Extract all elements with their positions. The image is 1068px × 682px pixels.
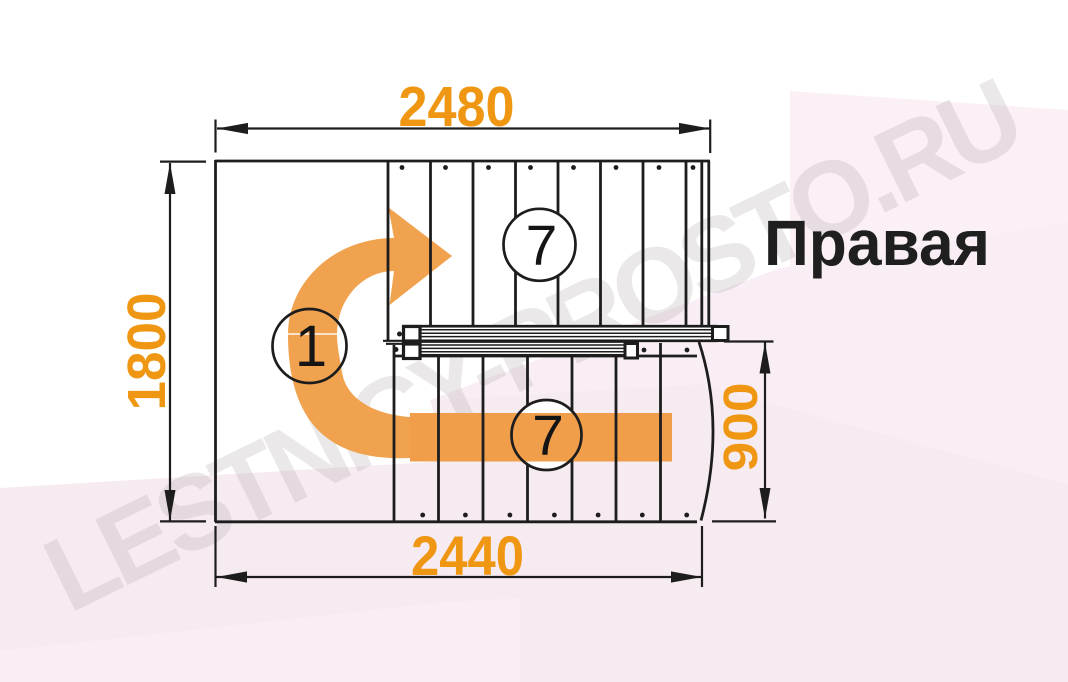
svg-text:2440: 2440 bbox=[411, 524, 524, 587]
svg-text:1800: 1800 bbox=[117, 293, 177, 411]
svg-text:1: 1 bbox=[295, 314, 327, 379]
svg-text:900: 900 bbox=[715, 383, 768, 472]
svg-text:7: 7 bbox=[532, 404, 564, 468]
svg-text:2480: 2480 bbox=[399, 75, 515, 139]
svg-text:7: 7 bbox=[526, 214, 558, 278]
svg-text:Правая: Правая bbox=[764, 207, 990, 279]
